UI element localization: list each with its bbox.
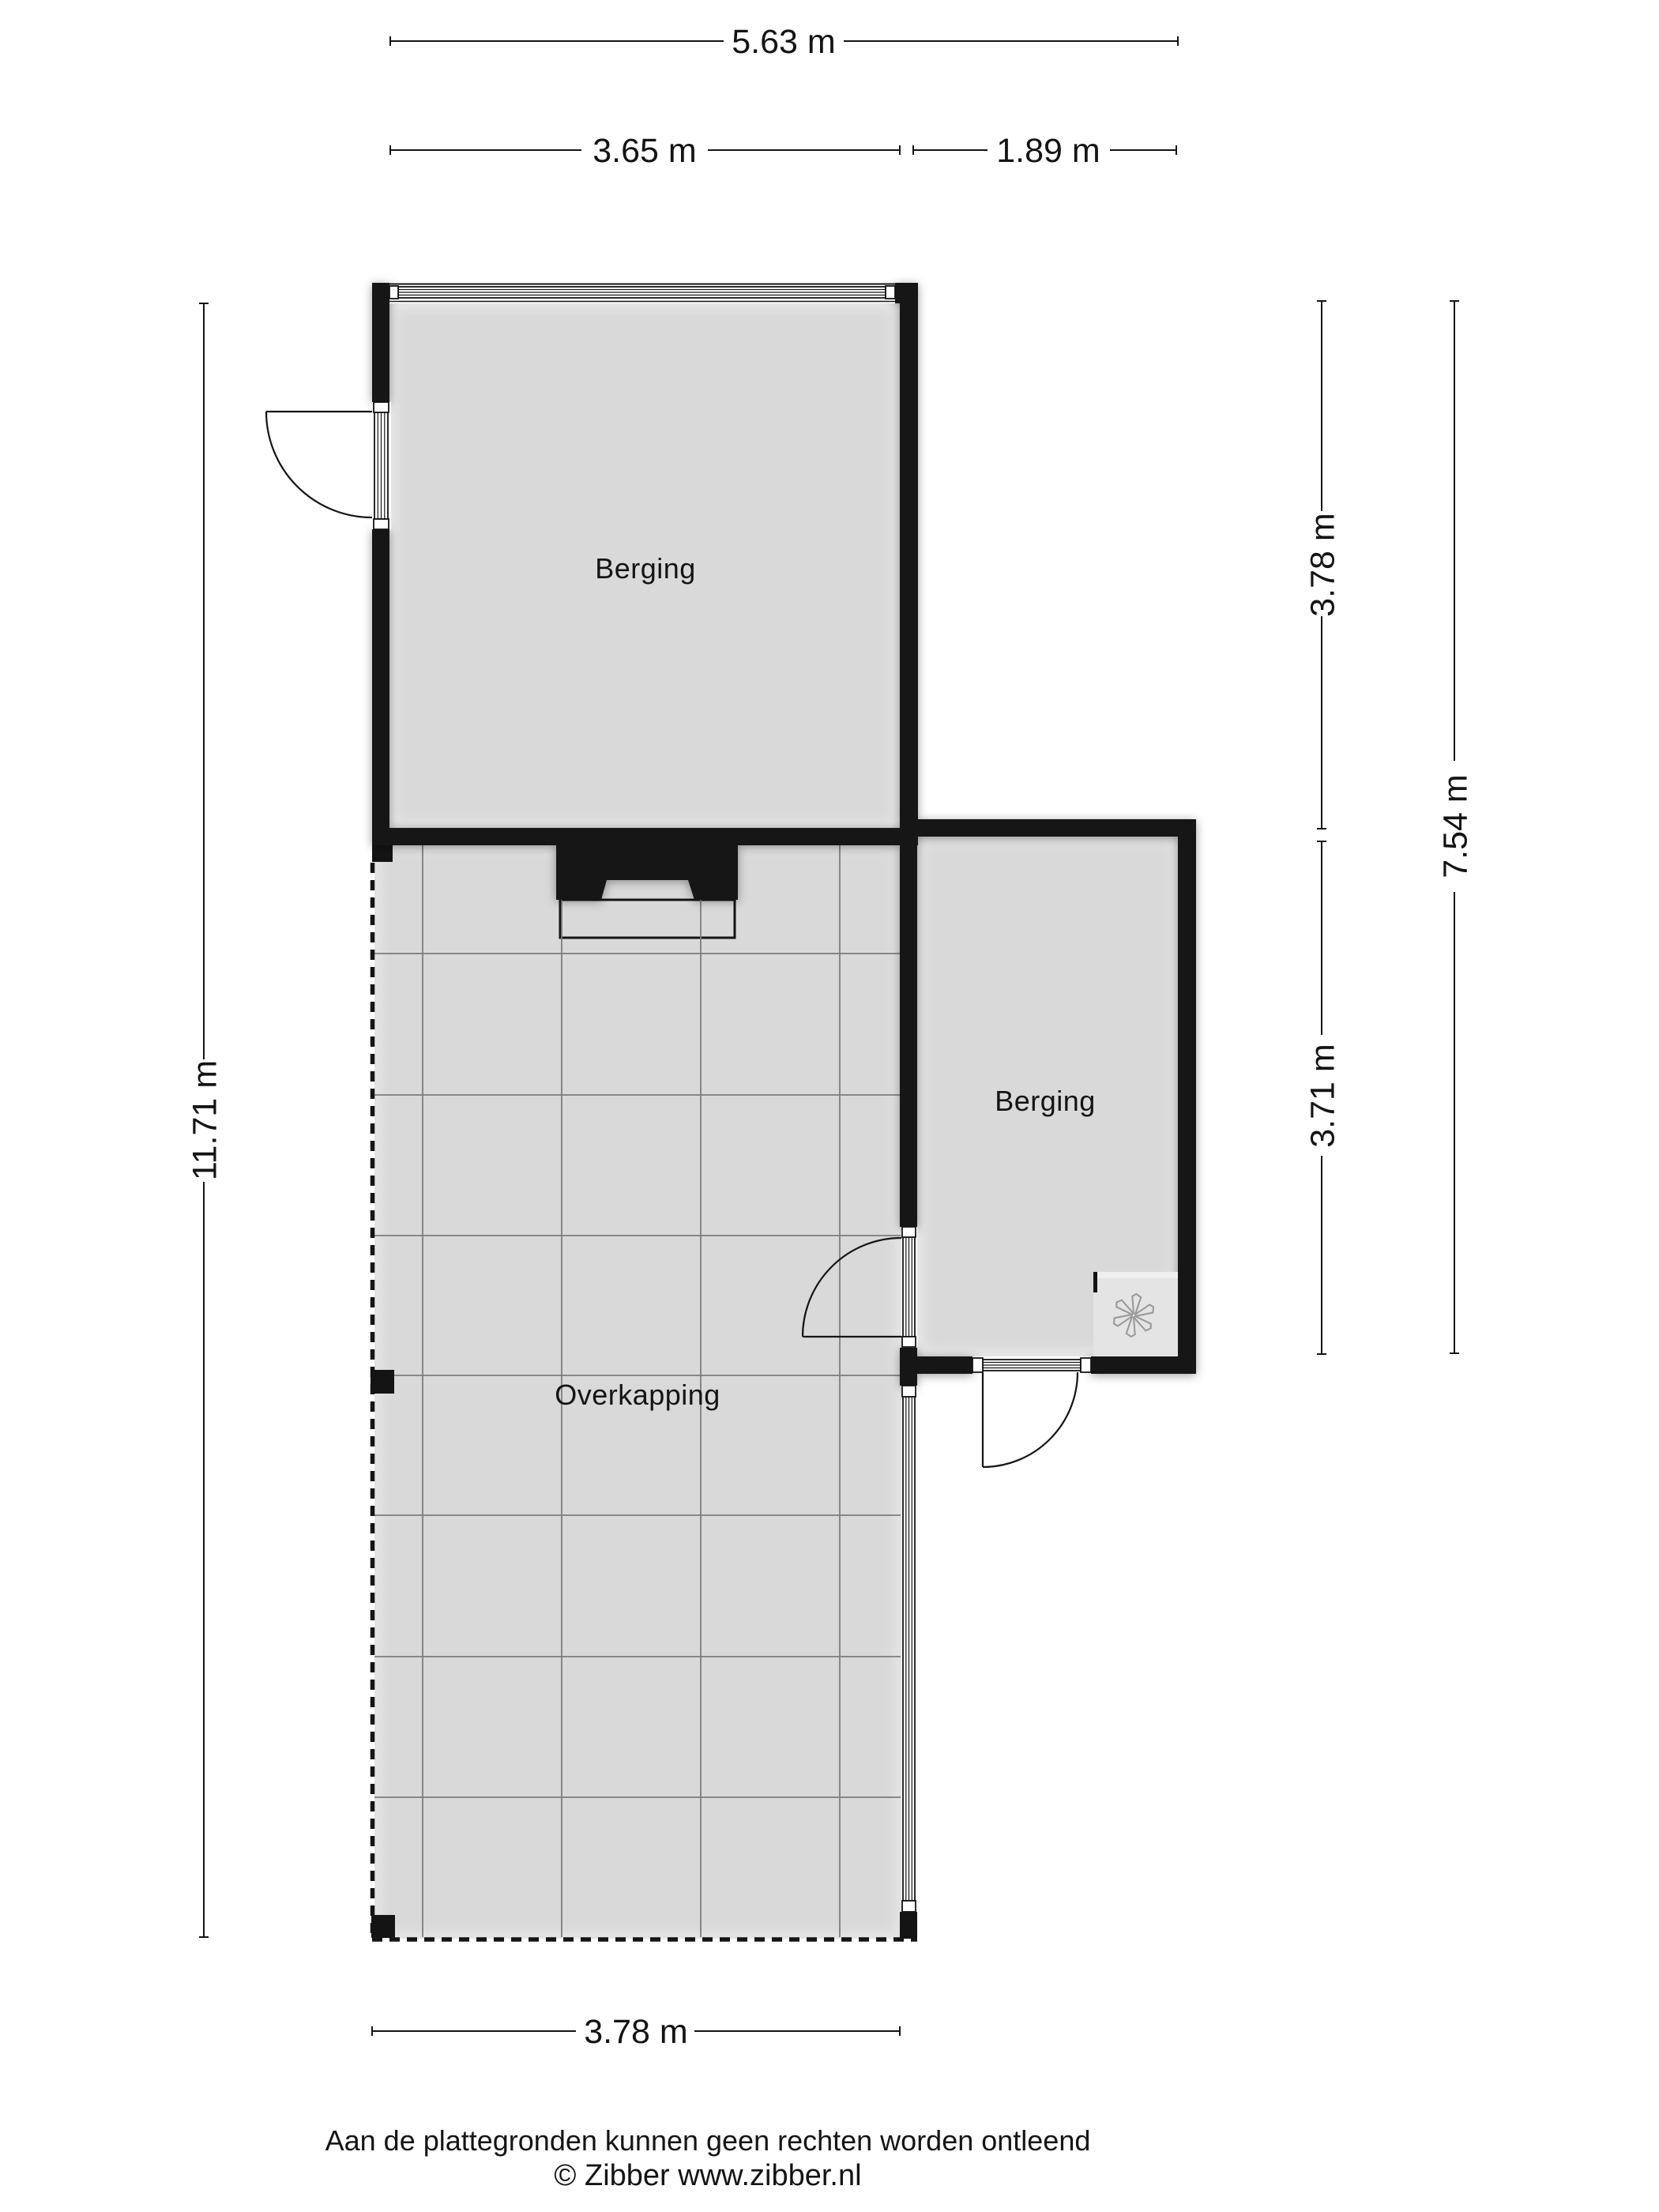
svg-text:11.71 m: 11.71 m <box>186 1060 224 1180</box>
svg-text:1.89 m: 1.89 m <box>996 132 1100 170</box>
svg-text:7.54 m: 7.54 m <box>1436 774 1474 878</box>
svg-text:© Zibber www.zibber.nl: © Zibber www.zibber.nl <box>554 2159 861 2192</box>
svg-text:Berging: Berging <box>995 1085 1096 1117</box>
svg-text:Berging: Berging <box>595 552 696 585</box>
svg-text:3.71 m: 3.71 m <box>1303 1044 1341 1147</box>
svg-text:5.63 m: 5.63 m <box>732 23 835 61</box>
svg-text:3.78 m: 3.78 m <box>1303 513 1341 616</box>
svg-text:Overkapping: Overkapping <box>555 1379 720 1411</box>
svg-text:Aan de plattegronden kunnen ge: Aan de plattegronden kunnen geen rechten… <box>325 2124 1091 2157</box>
svg-text:3.78 m: 3.78 m <box>584 2013 687 2051</box>
svg-text:3.65 m: 3.65 m <box>592 132 696 170</box>
